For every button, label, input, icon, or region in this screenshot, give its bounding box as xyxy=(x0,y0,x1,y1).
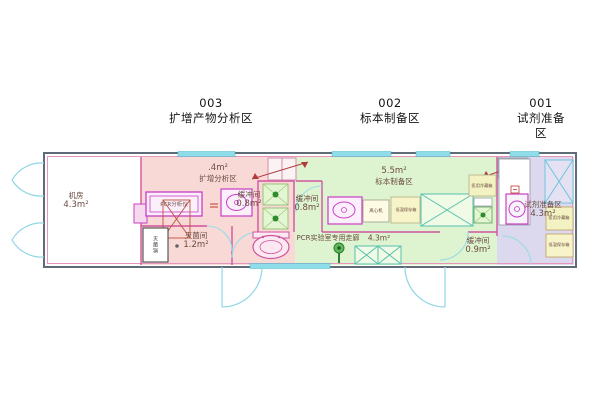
window-segment-icon xyxy=(178,152,235,157)
label-buffer-specimen: 缓冲间 0.8m² xyxy=(294,194,319,214)
left-double-door-icon xyxy=(12,163,44,257)
label-buffer-center: 缓冲间 0.8m² xyxy=(236,190,261,210)
zone-code: 003 xyxy=(169,96,253,111)
label-buffer-reagent: 缓冲间 0.9m² xyxy=(465,236,490,256)
zone-name: 标本制备区 xyxy=(360,111,420,126)
floorplan-page: 003 扩增产物分析区 002 标本制备区 001 试剂准备区 xyxy=(0,0,600,400)
zone-title-001: 001 试剂准备区 xyxy=(512,96,571,141)
label-specimen: 5.5m² 标本制备区 xyxy=(375,166,413,186)
zone-fill-machine-room xyxy=(46,157,141,265)
label-sterilization: 灭菌间 1.2m² xyxy=(183,231,208,251)
zone-name: 扩增产物分析区 xyxy=(169,111,253,126)
label-pcr-analyzer: PCR分析仪 xyxy=(160,200,187,208)
window-segment-icon xyxy=(510,152,539,157)
zone-code: 001 xyxy=(512,96,571,111)
label-amplification: .4m² 扩增分析区 xyxy=(199,163,237,183)
window-segment-icon xyxy=(416,152,450,157)
zone-code: 002 xyxy=(360,96,420,111)
label-freezer-specimen: 低温保存箱 xyxy=(396,207,417,213)
label-centrifuge: 离心机 xyxy=(369,208,383,214)
entrance-door-arc-icon xyxy=(222,267,445,307)
label-autoclave: 灭菌锅 xyxy=(152,236,159,254)
label-corridor-name: PCR实验室专用走廊 xyxy=(297,233,360,243)
label-freezer-reagent: 低温保存箱 xyxy=(549,242,570,248)
label-corridor-area: 4.3m² xyxy=(368,234,390,243)
zone-title-003: 003 扩增产物分析区 xyxy=(169,96,253,126)
label-fridge-specimen: 医用冷藏箱 xyxy=(472,183,493,189)
label-fridge-reagent: 医用冷藏箱 xyxy=(549,215,570,221)
zone-name: 试剂准备区 xyxy=(512,111,571,141)
label-machine-room: 机房 4.3m² xyxy=(63,191,88,211)
zone-title-002: 002 标本制备区 xyxy=(360,96,420,126)
window-segment-icon xyxy=(332,152,391,157)
